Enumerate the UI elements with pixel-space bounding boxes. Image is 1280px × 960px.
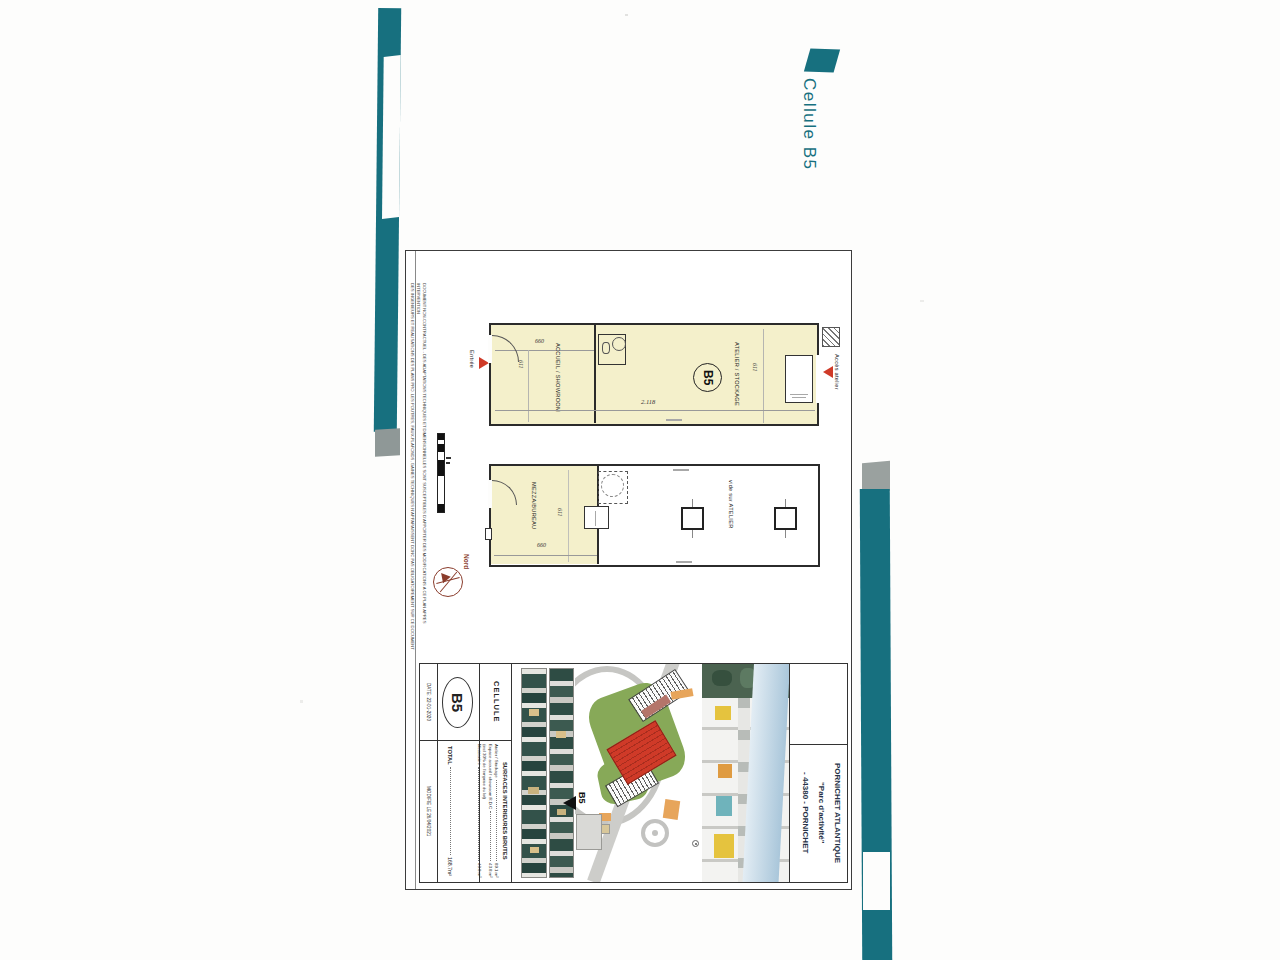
surface-row: Mezzanine40.8 m²	[476, 744, 482, 878]
mz-landing-rect	[584, 506, 609, 529]
right-bar-white-notch	[863, 852, 890, 910]
scan-speck	[625, 14, 628, 16]
ground-floor-plan: 660 611 B5 ACCUEIL / SHOWROOM ATELIER / …	[489, 323, 819, 426]
disclaimer-line1: DOCUMENT NON-CONTRACTUEL - DES ADAPTATIO…	[415, 283, 427, 653]
mz-dimline-660	[494, 555, 597, 556]
gf-atelier-door-opening	[816, 355, 820, 403]
gf-dim-611-left: 611	[518, 360, 524, 384]
gf-dimline-length	[495, 410, 815, 411]
disclaimer-text: DOCUMENT NON-CONTRACTUEL - DES ADAPTATIO…	[409, 283, 427, 653]
gf-wc-room	[598, 334, 626, 365]
render-door-yellow-top	[715, 706, 731, 720]
gf-dimline-611-right	[763, 329, 764, 423]
tb-cellule-header: CELLULE	[483, 668, 509, 736]
mz-dimline-611	[568, 470, 569, 562]
render-door-yellow	[714, 834, 734, 858]
left-bar-white-notch	[382, 55, 401, 219]
tb-total-value: 168.7m²	[447, 857, 453, 876]
scan-speck	[300, 700, 303, 703]
entry-label: Entrée	[469, 350, 475, 378]
mz-micro-bottom	[676, 561, 692, 563]
project-line3: - 44380 - PORNICHET	[797, 748, 813, 878]
site-unit-arrow-icon	[563, 796, 576, 810]
scale-tick-label-2	[446, 462, 450, 464]
render-door-orange	[718, 764, 732, 778]
gf-micro-note	[666, 419, 682, 421]
site-unit-label: B5	[577, 792, 587, 814]
tb-unit-ellipse: B5	[442, 677, 473, 728]
tb-total-label: TOTAL	[447, 746, 453, 765]
mz-left-wall-box	[485, 528, 492, 540]
render-photo	[702, 664, 789, 882]
gf-shower-arc-icon	[612, 337, 626, 351]
north-label: Nord	[463, 554, 470, 580]
scale-bar	[437, 433, 445, 513]
site-building-orange-2	[663, 799, 680, 820]
gf-unit-badge: B5	[693, 363, 722, 392]
gf-sectional-door	[785, 355, 813, 403]
mz-skylight-1	[681, 507, 704, 530]
gf-door-swing-arc	[492, 335, 519, 362]
gf-roof-hatch-symbol	[822, 327, 840, 347]
tb-total-leader	[450, 767, 451, 855]
mz-void-label: vide sur ATELIER	[728, 480, 734, 552]
elevation-photo-strip-1	[521, 668, 547, 878]
mz-micro-top	[673, 469, 689, 471]
scanned-plan-page: Cellule B5 DOCUMENT NON-CONTRACTUEL - DE…	[0, 0, 1280, 960]
mezzanine-plan: MEZZA/BUREAU vide sur ATELIER 611 660	[489, 464, 820, 567]
access-arrow-icon	[823, 366, 833, 378]
site-building-gray	[576, 814, 602, 850]
north-compass-icon	[433, 567, 463, 597]
gf-unit-badge-text: B5	[701, 370, 715, 385]
title-block: DATE: 22-01-2020 MODIFIE LE 26/04/2021 B…	[419, 663, 848, 883]
mz-dim-611: 611	[557, 508, 563, 532]
surface-row: (incl 30% de l'emprise du lot)	[482, 744, 488, 878]
gf-dimline-611-left	[528, 350, 529, 422]
tb-unit-text: B5	[449, 693, 466, 712]
left-color-bar	[374, 8, 401, 432]
surface-row: Espace accueil / showroom R.D.C43.8 m²	[487, 744, 493, 878]
gf-room-atelier-label: ATELIER / STOCKAGE	[734, 342, 740, 412]
disclaimer-line2: DES INGENIEURS ET REALISATIONS DES PLANS…	[409, 283, 415, 653]
gf-room-accueil-label: ACCUEIL / SHOWROOM	[555, 343, 561, 411]
header-swatch-icon	[804, 48, 840, 72]
surface-row: Atelier / Stockage89.1 m²	[493, 744, 499, 878]
site-plan-map	[575, 664, 702, 882]
gf-toilet-icon	[602, 342, 610, 354]
tb-date: DATE: 22-01-2020	[421, 666, 436, 738]
gf-dim-611-right: 611	[752, 363, 758, 387]
drawing-sheet: DOCUMENT NON-CONTRACTUEL - DES ADAPTATIO…	[405, 250, 852, 890]
project-title: PORNICHET ATLANTIQUE "Parc d'activité" -…	[791, 748, 845, 878]
access-label: Accès atelier	[834, 354, 840, 404]
gf-partition-wall	[594, 325, 596, 423]
tb-modified: MODIFIE LE 26/04/2021	[421, 742, 436, 880]
mz-skylight-2	[774, 507, 797, 530]
mz-dim-660: 660	[537, 542, 546, 548]
page-title: Cellule B5	[799, 78, 819, 193]
tb-surfaces-title: SURFACES INTERIEURES BRUTES	[499, 742, 510, 880]
gf-dim-length: 2.118	[641, 398, 655, 405]
project-line1: PORNICHET ATLANTIQUE	[829, 748, 845, 878]
left-bar-gray-tip	[375, 428, 400, 456]
project-line2: "Parc d'activité"	[813, 748, 829, 878]
site-roundabout	[641, 819, 669, 847]
scan-speck	[920, 300, 924, 302]
elevation-photo-strip-2	[549, 668, 574, 878]
tb-surfaces-rows: Atelier / Stockage89.1 m² Espace accueil…	[476, 744, 499, 878]
tb-total-line: TOTAL 168.7m²	[444, 746, 456, 876]
render-door-teal	[716, 796, 732, 816]
scale-tick-label-1	[446, 457, 451, 459]
mz-stair-dashed-arc	[601, 474, 624, 497]
site-symbol-circle	[692, 840, 699, 847]
gf-dim-660: 660	[535, 338, 544, 344]
mz-office-fill	[491, 466, 597, 564]
